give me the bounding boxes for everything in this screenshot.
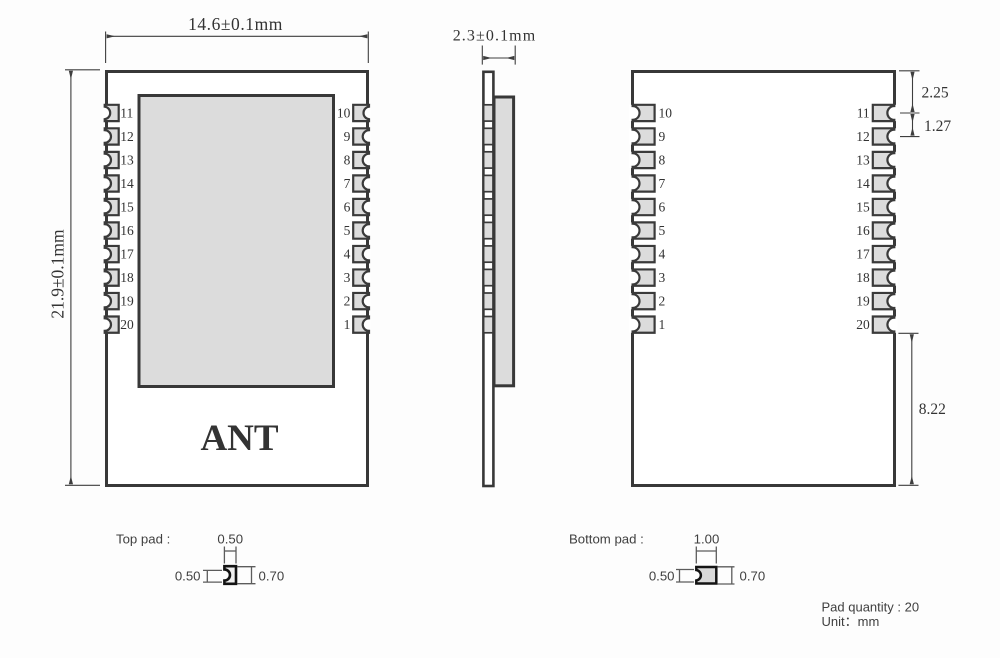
svg-text:4: 4 [344,247,351,262]
svg-text:21.9±0.1mm: 21.9±0.1mm [48,229,68,319]
svg-text:0.70: 0.70 [740,569,766,584]
svg-text:9: 9 [659,129,666,144]
svg-text:Pad quantity : 20: Pad quantity : 20 [822,600,920,615]
svg-text:13: 13 [120,153,134,168]
svg-text:13: 13 [856,153,870,168]
svg-text:2.25: 2.25 [922,85,949,102]
svg-text:1: 1 [344,317,351,332]
svg-text:Unit：mm: Unit：mm [822,614,880,629]
svg-text:8: 8 [344,153,351,168]
svg-text:5: 5 [344,223,351,238]
svg-text:1: 1 [659,317,666,332]
svg-text:7: 7 [344,176,351,191]
svg-text:4: 4 [659,247,666,262]
svg-text:0.50: 0.50 [175,569,201,584]
svg-text:5: 5 [659,223,666,238]
svg-text:19: 19 [856,294,870,309]
svg-text:ANT: ANT [200,418,278,459]
svg-text:7: 7 [659,176,666,191]
svg-text:3: 3 [659,270,666,285]
svg-text:14: 14 [120,176,134,191]
svg-text:8: 8 [659,153,666,168]
svg-text:6: 6 [344,200,351,215]
svg-text:10: 10 [337,106,351,121]
svg-text:20: 20 [120,317,134,332]
svg-text:2: 2 [659,294,666,309]
svg-text:18: 18 [856,270,870,285]
svg-text:10: 10 [659,106,673,121]
svg-text:1.00: 1.00 [694,532,720,547]
svg-text:Bottom pad :: Bottom pad : [569,532,644,547]
svg-text:14.6±0.1mm: 14.6±0.1mm [188,14,283,34]
svg-text:17: 17 [856,247,870,262]
svg-text:11: 11 [857,106,870,121]
svg-text:9: 9 [344,129,351,144]
svg-text:12: 12 [856,129,870,144]
svg-text:15: 15 [856,200,870,215]
svg-text:3: 3 [344,270,351,285]
svg-text:16: 16 [856,223,870,238]
svg-text:8.22: 8.22 [919,401,946,418]
svg-text:11: 11 [120,106,133,121]
svg-text:14: 14 [856,176,870,191]
svg-text:16: 16 [120,223,134,238]
svg-text:20: 20 [856,317,870,332]
svg-text:6: 6 [659,200,666,215]
svg-text:19: 19 [120,294,134,309]
svg-text:2: 2 [344,294,351,309]
svg-text:Top pad :: Top pad : [116,532,170,547]
svg-text:17: 17 [120,247,134,262]
svg-text:0.70: 0.70 [259,569,285,584]
svg-text:0.50: 0.50 [649,569,675,584]
svg-text:15: 15 [120,200,134,215]
svg-text:0.50: 0.50 [217,532,243,547]
svg-text:12: 12 [120,129,134,144]
svg-text:2.3±0.1mm: 2.3±0.1mm [453,28,537,45]
svg-text:18: 18 [120,270,134,285]
svg-text:1.27: 1.27 [924,118,951,135]
